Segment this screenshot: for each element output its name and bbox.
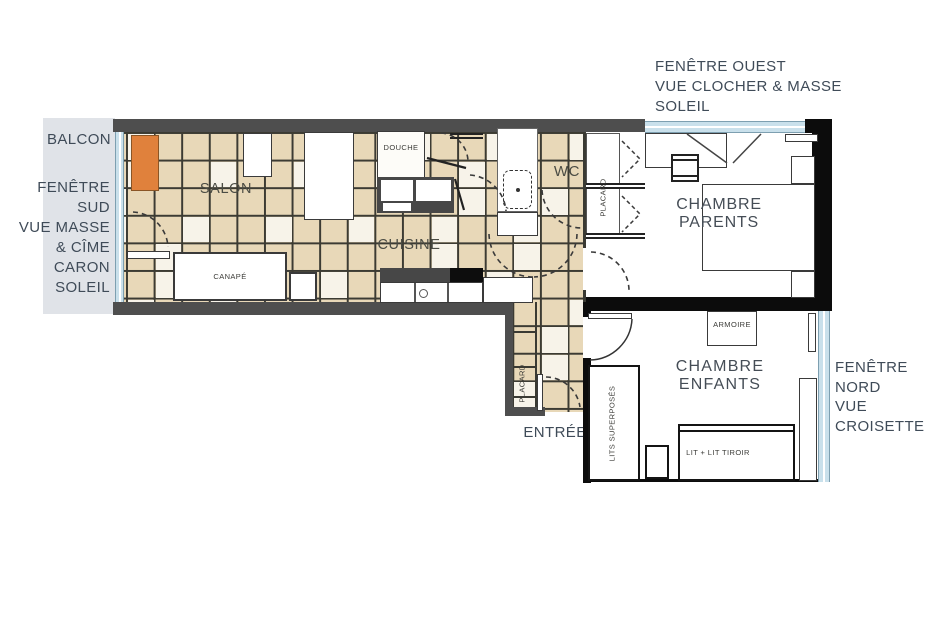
wc-label: WC — [550, 163, 584, 180]
wall-corridor-left — [505, 315, 513, 416]
washing-machine — [483, 277, 533, 303]
placard-parents-label: PLACARD — [598, 178, 607, 216]
kitchen-appliance-block — [377, 177, 454, 213]
note-line: FENÊTRE OUEST — [655, 57, 875, 77]
placard-shelf — [513, 331, 537, 333]
window-south-note: FENÊTRE SUD VUE MASSE & CÎME CARON SOLEI… — [2, 178, 110, 298]
nightstand — [791, 271, 815, 298]
tile — [459, 162, 485, 188]
cabinet-divider — [414, 283, 416, 302]
note-line: VUE CROISETTE — [835, 397, 940, 436]
wall-parents-bottom — [583, 297, 832, 311]
floor-plan: BALCON FENÊTRE SUD VUE MASSE & CÎME CARO… — [0, 0, 940, 627]
radiator-west — [785, 134, 818, 142]
enfants-door-arc — [590, 319, 632, 360]
kitchen-cabinets — [380, 282, 483, 303]
tile — [542, 327, 568, 353]
appliance — [383, 203, 411, 211]
placard-entrance: PLACARD — [472, 377, 572, 389]
placard-parents-stub — [586, 233, 645, 239]
wall-parents-right — [812, 119, 832, 311]
side-table-enfants — [645, 445, 669, 479]
appliance — [416, 180, 451, 201]
note-line: VUE MASSE — [2, 218, 110, 238]
note-line: VUE CLOCHER & MASSE — [655, 77, 875, 97]
tile — [459, 189, 485, 215]
tv-table — [243, 133, 272, 177]
note-line: SOLEIL — [2, 278, 110, 298]
kitchen-worktop — [380, 268, 450, 282]
placard-parents-stub — [586, 183, 645, 189]
bunk-beds-label: LITS SUPERPOSÉS — [607, 385, 616, 461]
partition-parents-left-low — [583, 290, 586, 302]
kitchen-hob — [450, 268, 483, 282]
sofa: CANAPÉ — [173, 252, 287, 301]
radiator-north — [808, 313, 816, 352]
parents-door-arc — [591, 252, 629, 290]
note-line: & CÎME CARON — [2, 238, 110, 278]
parents-label: CHAMBRE PARENTS — [639, 196, 799, 232]
tile — [321, 272, 347, 298]
window-swing-line — [733, 134, 761, 163]
tile — [183, 217, 209, 243]
tile — [570, 302, 583, 325]
tile — [124, 217, 126, 243]
cuisine-label: CUISINE — [364, 237, 454, 253]
sink-icon — [419, 289, 428, 298]
dining-table — [304, 132, 354, 220]
enfants-door-leaf — [588, 313, 632, 319]
headboard-line — [680, 430, 793, 432]
tile — [570, 134, 583, 160]
note-line: FENÊTRE NORD — [835, 358, 940, 397]
toilet-icon — [503, 170, 532, 209]
tile — [124, 189, 126, 215]
tile — [266, 217, 292, 243]
shelf-north — [799, 378, 817, 481]
placard-entrance-label: PLACARD — [517, 364, 526, 402]
note-line: SOLEIL — [655, 97, 875, 117]
appliance — [381, 180, 413, 201]
entrance-door-leaf — [537, 374, 543, 411]
enfants-label: CHAMBRE ENFANTS — [640, 358, 800, 394]
placard-parents: PLACARD — [553, 191, 653, 203]
window-west — [645, 121, 805, 133]
nightstand — [791, 156, 815, 184]
note-line: FENÊTRE SUD — [2, 178, 110, 218]
window-west-note: FENÊTRE OUEST VUE CLOCHER & MASSE SOLEIL — [655, 57, 875, 117]
shower-label: DOUCHE — [377, 143, 425, 152]
window-north-note: FENÊTRE NORD VUE CROISETTE — [835, 358, 940, 436]
side-table-salon — [289, 272, 317, 301]
toilet-dot — [516, 188, 520, 192]
orange-rug — [131, 135, 159, 191]
balcony-label: BALCON — [43, 130, 115, 150]
shower-room — [377, 131, 425, 178]
kitchen-shelf — [450, 133, 483, 139]
bifold-door-icon — [622, 141, 640, 177]
sofa-label: CANAPÉ — [213, 272, 246, 281]
stool — [671, 154, 699, 182]
bunk-beds-labelwrap: LITS SUPERPOSÉS — [562, 417, 662, 429]
bed-drawer-label: LIT + LIT TIROIR — [678, 448, 758, 457]
cabinet-divider — [447, 283, 449, 302]
wc-cistern — [497, 212, 538, 236]
tile — [514, 244, 540, 270]
radiator-south — [127, 251, 170, 259]
window-north — [818, 311, 830, 482]
wall-bottom-main — [113, 302, 513, 315]
wardrobe-label: ARMOIRE — [707, 320, 757, 329]
window-south — [115, 132, 124, 302]
salon-label: SALON — [181, 181, 271, 197]
